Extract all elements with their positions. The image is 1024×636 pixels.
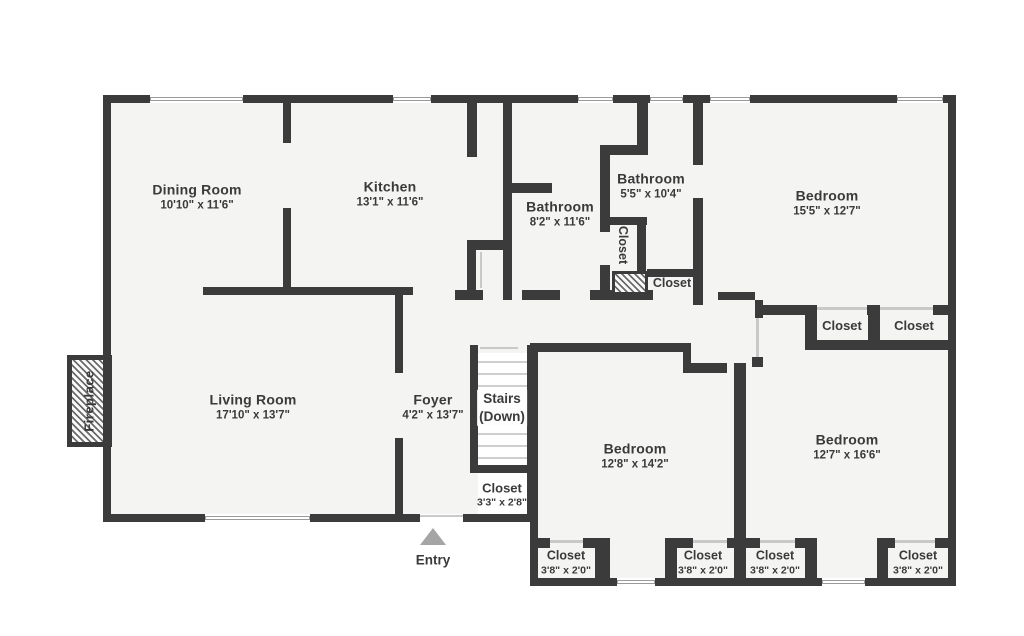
closet-dims: 3'8" x 2'0" (893, 564, 943, 577)
wall (203, 287, 413, 295)
wall (637, 103, 648, 148)
closet-label-bottom-2: Closet 3'8" x 2'0" (678, 549, 728, 578)
entry-arrow-icon (420, 528, 446, 545)
window-icon (710, 95, 750, 103)
room-label-bathroom-main: Bathroom 8'2" x 11'6" (526, 197, 594, 230)
stair-tread (478, 385, 527, 387)
wall (595, 538, 610, 578)
closet-label-hall-small: Closet (653, 276, 691, 292)
wall (467, 103, 477, 157)
door-threshold-icon (693, 540, 727, 543)
stair-tread (478, 445, 527, 447)
stair-tread (478, 373, 527, 375)
stairs-label: Stairs (Down) (477, 390, 527, 426)
wall (503, 183, 552, 193)
wall (763, 305, 805, 315)
door-threshold-icon (420, 515, 463, 517)
room-name: Bedroom (601, 439, 669, 457)
room-name: Bedroom (813, 430, 881, 448)
wall (530, 578, 956, 586)
room-name: Foyer (402, 390, 463, 408)
room-name: Bedroom (793, 186, 861, 204)
window-icon (578, 95, 613, 103)
stairs-line1: Stairs (479, 390, 525, 408)
room-name: Bathroom (617, 169, 685, 187)
closet-label-bottom-1: Closet 3'8" x 2'0" (541, 549, 591, 578)
closet-dims: 3'8" x 2'0" (750, 564, 800, 577)
room-label-kitchen: Kitchen 13'1" x 11'6" (357, 177, 424, 210)
wall (752, 357, 763, 367)
room-name: Bathroom (526, 197, 594, 215)
room-label-bedroom-ne: Bedroom 15'5" x 12'7" (793, 186, 861, 219)
wall (795, 538, 805, 548)
wall (530, 343, 691, 352)
closet-name: Closet (750, 549, 800, 565)
room-dims: 4'2" x 13'7" (402, 409, 463, 424)
stair-tread (478, 457, 527, 459)
room-dims: 8'2" x 11'6" (526, 216, 594, 231)
closet-name: Closet (893, 549, 943, 565)
wall (530, 538, 550, 548)
window-icon (150, 95, 243, 103)
door-threshold-icon (880, 307, 933, 310)
wall (693, 198, 703, 300)
wall (503, 103, 512, 300)
wall (395, 287, 403, 373)
room-dims: 10'10" x 11'6" (152, 199, 241, 214)
wall (103, 95, 111, 522)
stair-tread (478, 433, 527, 435)
wall (755, 300, 763, 318)
wall (527, 345, 538, 515)
room-label-bathroom-ensuite: Bathroom 5'5" x 10'4" (617, 169, 685, 202)
room-label-living: Living Room 17'10" x 13'7" (210, 390, 297, 423)
wall (522, 290, 560, 300)
room-label-foyer: Foyer 4'2" x 13'7" (402, 390, 463, 423)
wall (877, 538, 888, 578)
closet-dims: 3'3" x 2'8" (477, 497, 527, 510)
door-threshold-icon (550, 540, 583, 543)
closet-dims: 3'8" x 2'0" (678, 564, 728, 577)
floorplan: Dining Room 10'10" x 11'6" Kitchen 13'1"… (0, 0, 1024, 636)
window-icon (650, 95, 683, 103)
wall (600, 155, 610, 232)
door-threshold-icon (817, 307, 867, 310)
window-icon (822, 578, 865, 586)
room-dims: 17'10" x 13'7" (210, 409, 297, 424)
room-dims: 5'5" x 10'4" (617, 188, 685, 203)
door-threshold-icon (756, 318, 759, 357)
wall (734, 363, 746, 578)
room-label-bedroom-s: Bedroom 12'8" x 14'2" (601, 439, 669, 472)
room-name: Kitchen (357, 177, 424, 195)
wall (600, 265, 610, 292)
closet-name: Closet (678, 549, 728, 565)
wall (746, 538, 760, 548)
room-name: Dining Room (152, 180, 241, 198)
stairs-line2: (Down) (479, 408, 525, 426)
room-dims: 13'1" x 11'6" (357, 196, 424, 211)
door-threshold-icon (480, 252, 482, 288)
wall (470, 465, 530, 473)
wall (727, 538, 734, 548)
door-threshold-icon (760, 540, 795, 543)
closet-name: Closet (541, 549, 591, 565)
wall (677, 538, 693, 548)
closet-label-bottom-3: Closet 3'8" x 2'0" (750, 549, 800, 578)
wall (683, 363, 727, 373)
wall (805, 538, 817, 578)
entry-label: Entry (416, 553, 451, 568)
wall (637, 217, 646, 272)
door-threshold-icon (480, 347, 518, 349)
wall (395, 438, 403, 522)
wall (888, 538, 895, 548)
chimney-hatch-icon (615, 274, 645, 292)
wall (718, 292, 755, 300)
fireplace-label: Fireplace (82, 370, 97, 432)
wall (665, 538, 677, 578)
closet-label-bedroom-ne-a: Closet (822, 318, 862, 334)
wall (103, 514, 538, 522)
room-dims: 12'8" x 14'2" (601, 458, 669, 473)
wall (455, 290, 483, 300)
wall (935, 538, 948, 548)
room-dims: 12'7" x 16'6" (813, 449, 881, 464)
wall (467, 240, 512, 250)
wall (933, 305, 956, 315)
closet-dims: 3'8" x 2'0" (541, 564, 591, 577)
closet-label-bottom-4: Closet 3'8" x 2'0" (893, 549, 943, 578)
wall (600, 145, 648, 155)
closet-label-hall-vertical: Closet (616, 226, 630, 264)
window-icon (393, 95, 431, 103)
wall (693, 103, 703, 165)
room-label-bedroom-se: Bedroom 12'7" x 16'6" (813, 430, 881, 463)
wall (283, 208, 291, 295)
wall (283, 103, 291, 143)
room-dims: 15'5" x 12'7" (793, 205, 861, 220)
room-label-dining: Dining Room 10'10" x 11'6" (152, 180, 241, 213)
closet-name: Closet (477, 480, 527, 496)
closet-label-under-stairs: Closet 3'3" x 2'8" (477, 480, 527, 509)
window-icon (205, 514, 310, 522)
room-name: Living Room (210, 390, 297, 408)
window-icon (897, 95, 943, 103)
closet-label-bedroom-ne-b: Closet (894, 318, 934, 334)
wall (805, 340, 956, 350)
window-icon (617, 578, 655, 586)
stair-tread (478, 361, 527, 363)
door-threshold-icon (895, 540, 935, 543)
